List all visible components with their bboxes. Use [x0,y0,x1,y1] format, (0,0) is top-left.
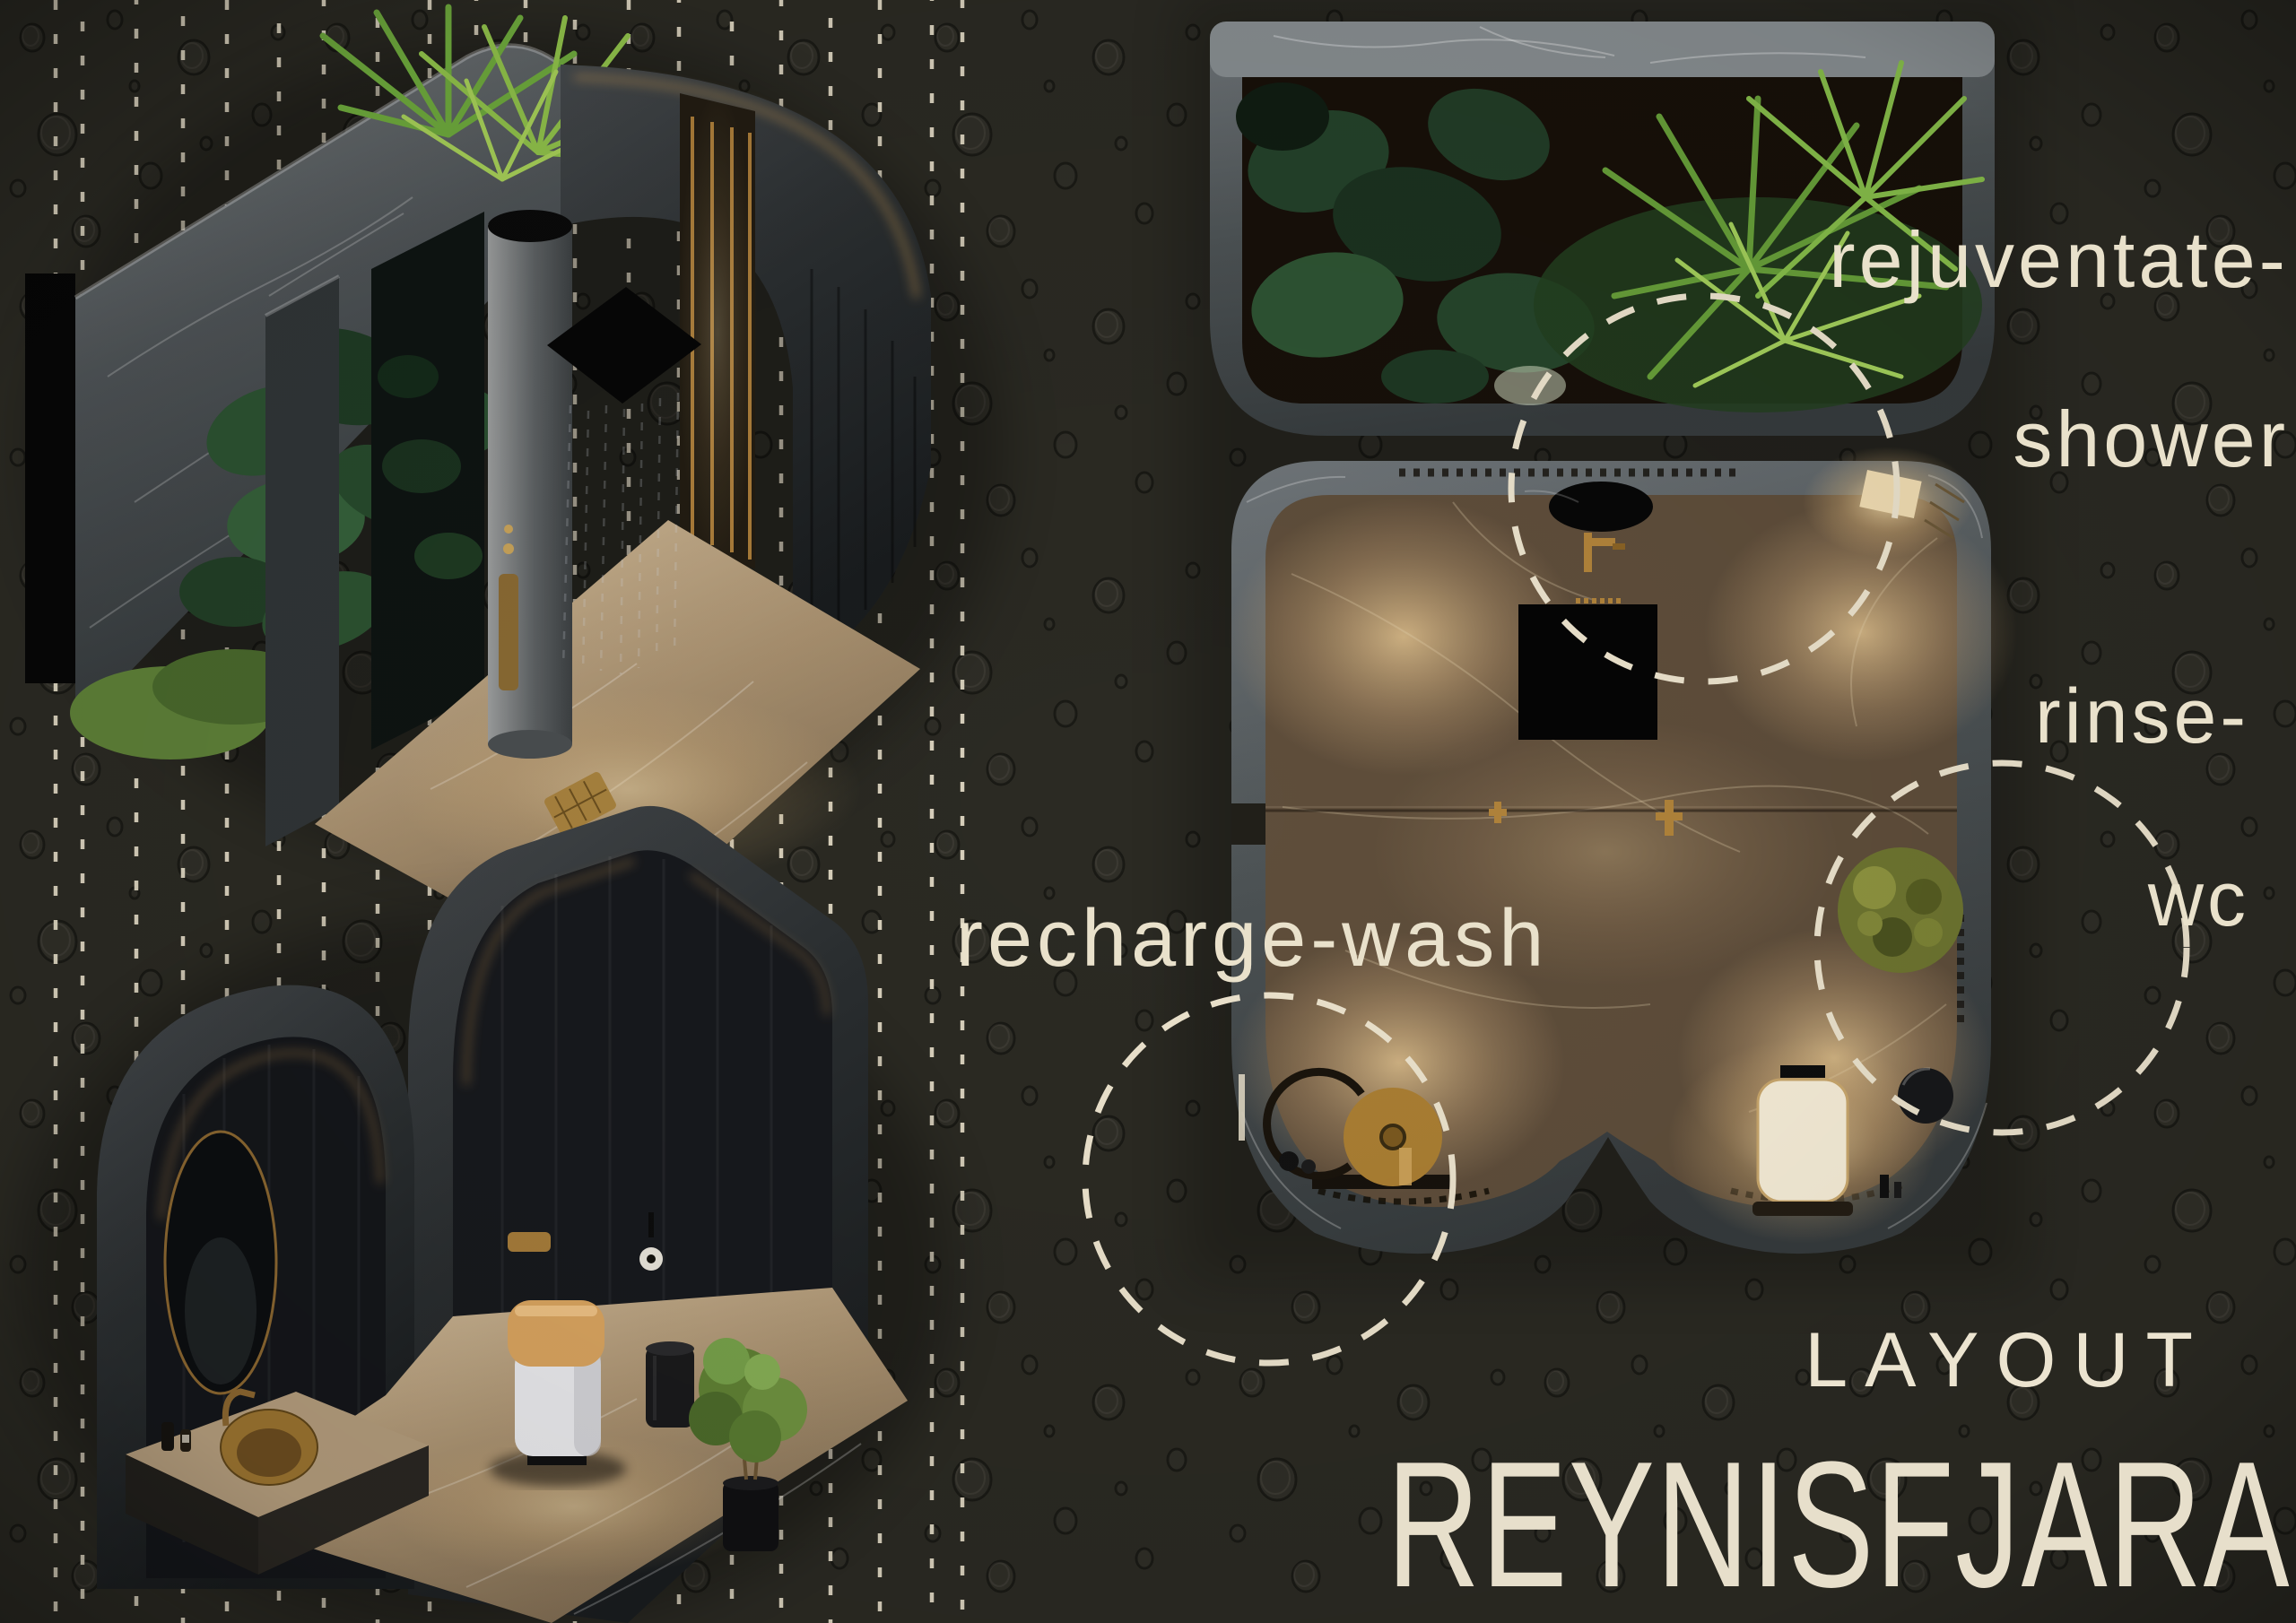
label-recharge-wash: recharge-wash [956,893,1548,985]
label-wc-line1: rinse- [2035,673,2249,759]
label-rinse-wc: rinse- wc [2035,671,2249,945]
label-shower-line1: rejuventate- [1829,215,2289,304]
label-rejuvenate-shower: rejuventate- shower [1829,215,2289,484]
label-shower-line2: shower [2013,395,2289,483]
layout-kicker: LAYOUT [1805,1316,2210,1405]
project-title: REYNISFJARA [1387,1422,2291,1623]
label-wc-line2: wc [2148,856,2249,942]
design-poster: rejuventate- shower rinse- wc recharge-w… [0,0,2296,1623]
